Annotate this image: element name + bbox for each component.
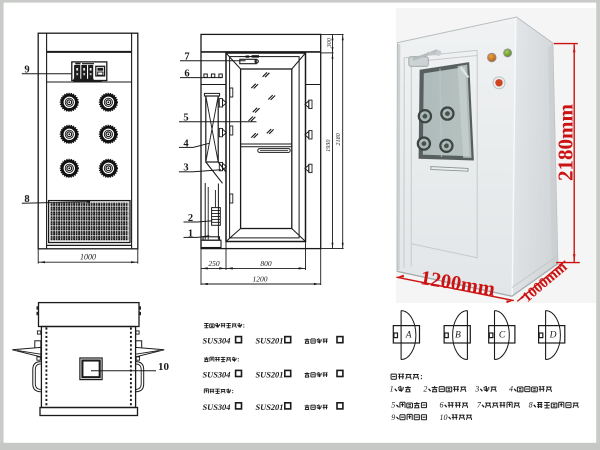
svg-text:3: 3 (474, 385, 479, 394)
svg-text:2180mm: 2180mm (554, 104, 578, 181)
svg-text:2: 2 (188, 213, 193, 224)
svg-text:8: 8 (529, 401, 533, 410)
svg-text:4: 4 (509, 385, 513, 394)
svg-text:SUS304: SUS304 (203, 403, 231, 412)
svg-text:4: 4 (183, 138, 189, 149)
svg-text:SUS201: SUS201 (256, 403, 284, 412)
svg-text:SUS304: SUS304 (203, 337, 231, 346)
svg-text:SUS201: SUS201 (256, 337, 284, 346)
svg-text:1930: 1930 (325, 139, 332, 152)
svg-text:6: 6 (440, 401, 444, 410)
svg-text:SUS304: SUS304 (203, 370, 231, 379)
svg-text:SUS201: SUS201 (256, 370, 284, 379)
svg-text:5: 5 (183, 113, 188, 124)
svg-text:300: 300 (326, 37, 333, 48)
svg-text:D: D (549, 330, 557, 340)
svg-text:1200: 1200 (253, 274, 268, 283)
svg-text:10: 10 (440, 413, 448, 422)
svg-text:1: 1 (390, 385, 394, 394)
svg-text:C: C (499, 330, 506, 340)
svg-text:2: 2 (423, 385, 427, 394)
svg-text:8: 8 (24, 194, 29, 205)
svg-text:6: 6 (184, 69, 189, 80)
svg-text:A: A (405, 330, 412, 340)
svg-text:9: 9 (24, 65, 29, 76)
svg-text:5: 5 (391, 401, 395, 410)
svg-text:800: 800 (260, 259, 272, 268)
svg-text:10: 10 (158, 361, 170, 373)
svg-text:7: 7 (184, 52, 189, 63)
svg-text:B: B (455, 330, 461, 340)
svg-text:250: 250 (208, 259, 220, 268)
svg-text:9: 9 (391, 413, 395, 422)
svg-text:3: 3 (183, 163, 188, 174)
svg-text:1000: 1000 (80, 253, 96, 262)
svg-text:1: 1 (188, 228, 193, 239)
svg-text:2180: 2180 (335, 132, 342, 145)
